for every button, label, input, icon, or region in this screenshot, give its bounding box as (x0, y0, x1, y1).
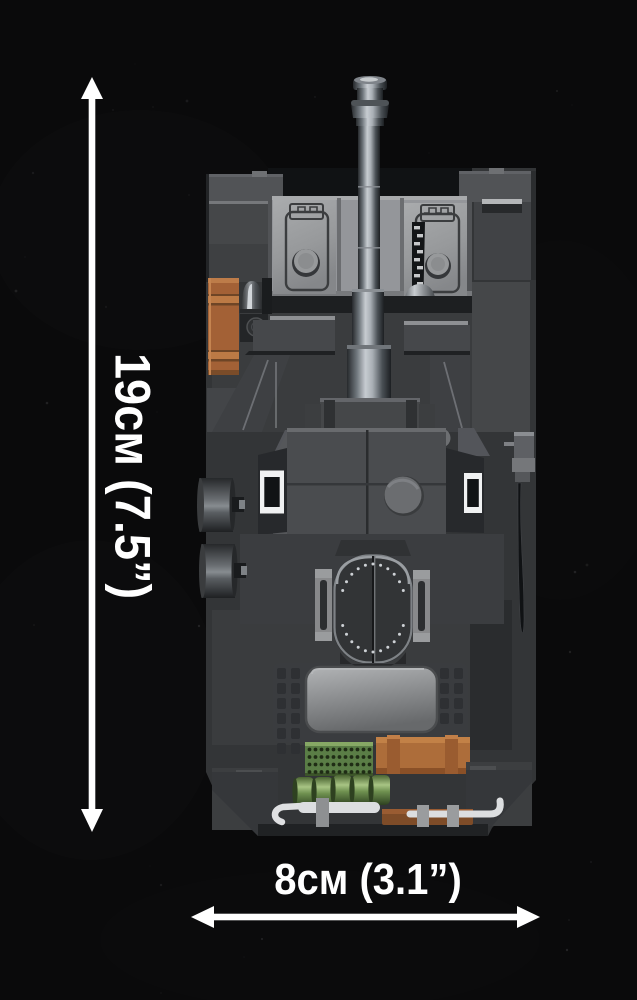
svg-text:8cм (3.1”): 8cм (3.1”) (274, 854, 462, 903)
svg-text:19cм (7.5”): 19cм (7.5”) (104, 353, 160, 599)
